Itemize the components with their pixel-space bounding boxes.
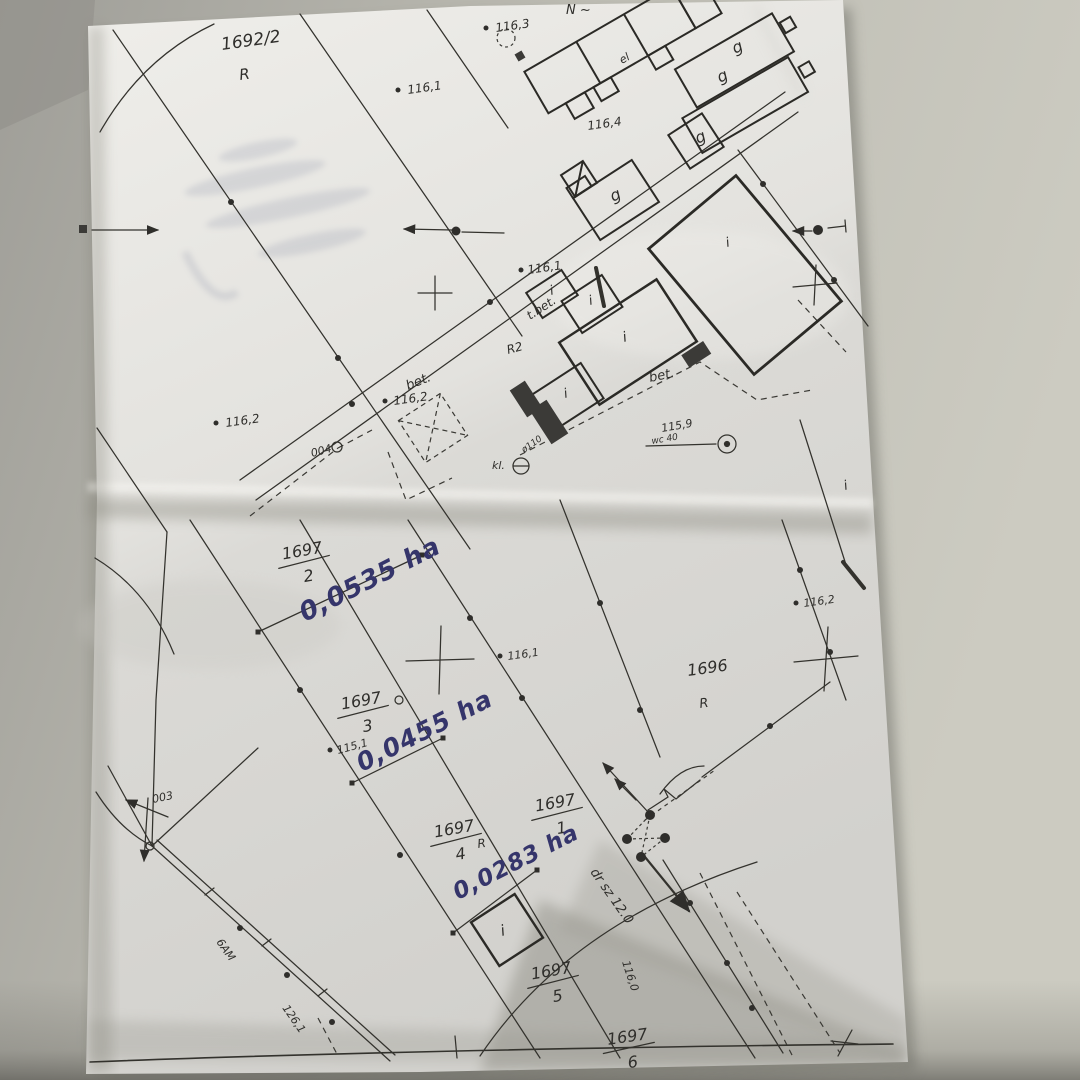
north-note: N ~ [566,3,591,18]
cadastral-map-scene: 1692/2 R 116,1 116,3 N ~ el g g g g 116,… [0,0,1080,1080]
photo-of-cadastral-map: 1692/2 R 116,1 116,3 N ~ el g g g g 116,… [0,0,1080,1080]
paper-sheet [80,0,916,1080]
annotation-kl: kl. [492,459,505,472]
